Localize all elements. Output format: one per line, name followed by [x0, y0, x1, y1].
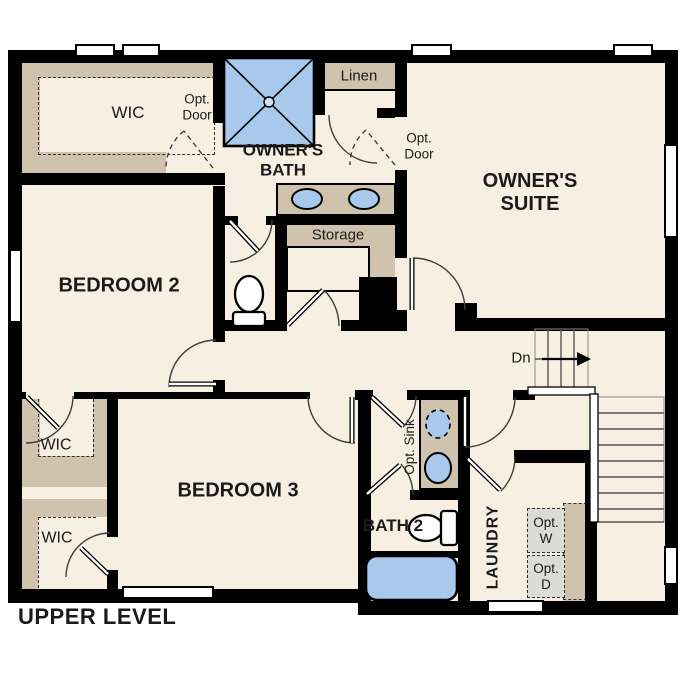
wall — [222, 216, 238, 225]
storage-interior — [286, 246, 370, 292]
wall — [358, 390, 371, 601]
window — [664, 144, 678, 238]
room-label-owners-bath: OWNER'S BATH — [229, 140, 337, 179]
floor-plan: Opt. W Opt. D WIC Opt. Door OWNER'S BATH… — [0, 0, 687, 687]
window — [75, 44, 115, 57]
room-label-laundry: LAUNDRY — [485, 505, 504, 590]
room-label-wic-mid: WIC — [40, 437, 71, 456]
wall — [8, 50, 22, 603]
wall — [8, 392, 26, 399]
wall — [107, 392, 118, 537]
room-label-linen: Linen — [341, 67, 378, 84]
optional-washer-label: Opt. W — [528, 515, 564, 546]
wall — [410, 490, 458, 500]
wall — [514, 450, 587, 463]
optional-dryer: Opt. D — [527, 555, 565, 598]
owners-bath-vanity — [276, 183, 396, 216]
room-label-wic-top: WIC — [111, 103, 144, 123]
optional-door-label: Opt. Door — [174, 91, 220, 122]
room-label-wic-low: WIC — [41, 530, 72, 549]
wic1-shelf — [22, 63, 213, 78]
wall — [458, 390, 470, 601]
wall — [8, 173, 225, 185]
plan-title: UPPER LEVEL — [18, 604, 176, 630]
bath2-vanity — [419, 398, 458, 490]
chase — [359, 277, 397, 331]
window — [411, 44, 452, 57]
window — [487, 600, 544, 613]
storage-shelf — [368, 248, 395, 278]
wic3-dashed-outline — [38, 517, 96, 588]
room-label-owners-suite: OWNER'S SUITE — [465, 170, 595, 216]
wall — [585, 450, 597, 601]
wall — [213, 320, 287, 331]
wall — [341, 320, 361, 331]
wall — [107, 570, 118, 593]
room-label-bath2: BATH 2 — [361, 516, 425, 536]
wall — [315, 57, 325, 115]
room-label-bedroom3: BEDROOM 3 — [128, 479, 348, 502]
optional-dryer-label: Opt. D — [528, 561, 564, 592]
room-label-storage: Storage — [312, 226, 365, 243]
wall — [395, 170, 407, 258]
optional-sink-label: Opt. Sink — [402, 419, 418, 475]
wall — [665, 50, 678, 615]
room-label-bedroom2: BEDROOM 2 — [9, 274, 229, 297]
wall — [213, 186, 225, 342]
wall — [275, 225, 287, 325]
wall — [266, 216, 407, 225]
wall — [513, 390, 535, 400]
window — [122, 44, 160, 57]
wic1-shelf — [22, 152, 166, 173]
wall — [460, 318, 678, 331]
optional-door-label: Opt. Door — [396, 130, 442, 161]
wall — [360, 551, 458, 558]
window — [613, 44, 653, 57]
stairs-down-label: Dn — [511, 349, 530, 366]
wall — [395, 63, 407, 117]
laundry-cabinet-dashed-outline — [563, 503, 587, 600]
wall — [377, 108, 395, 118]
window — [664, 546, 678, 585]
optional-washer: Opt. W — [527, 508, 565, 553]
window — [122, 586, 214, 599]
